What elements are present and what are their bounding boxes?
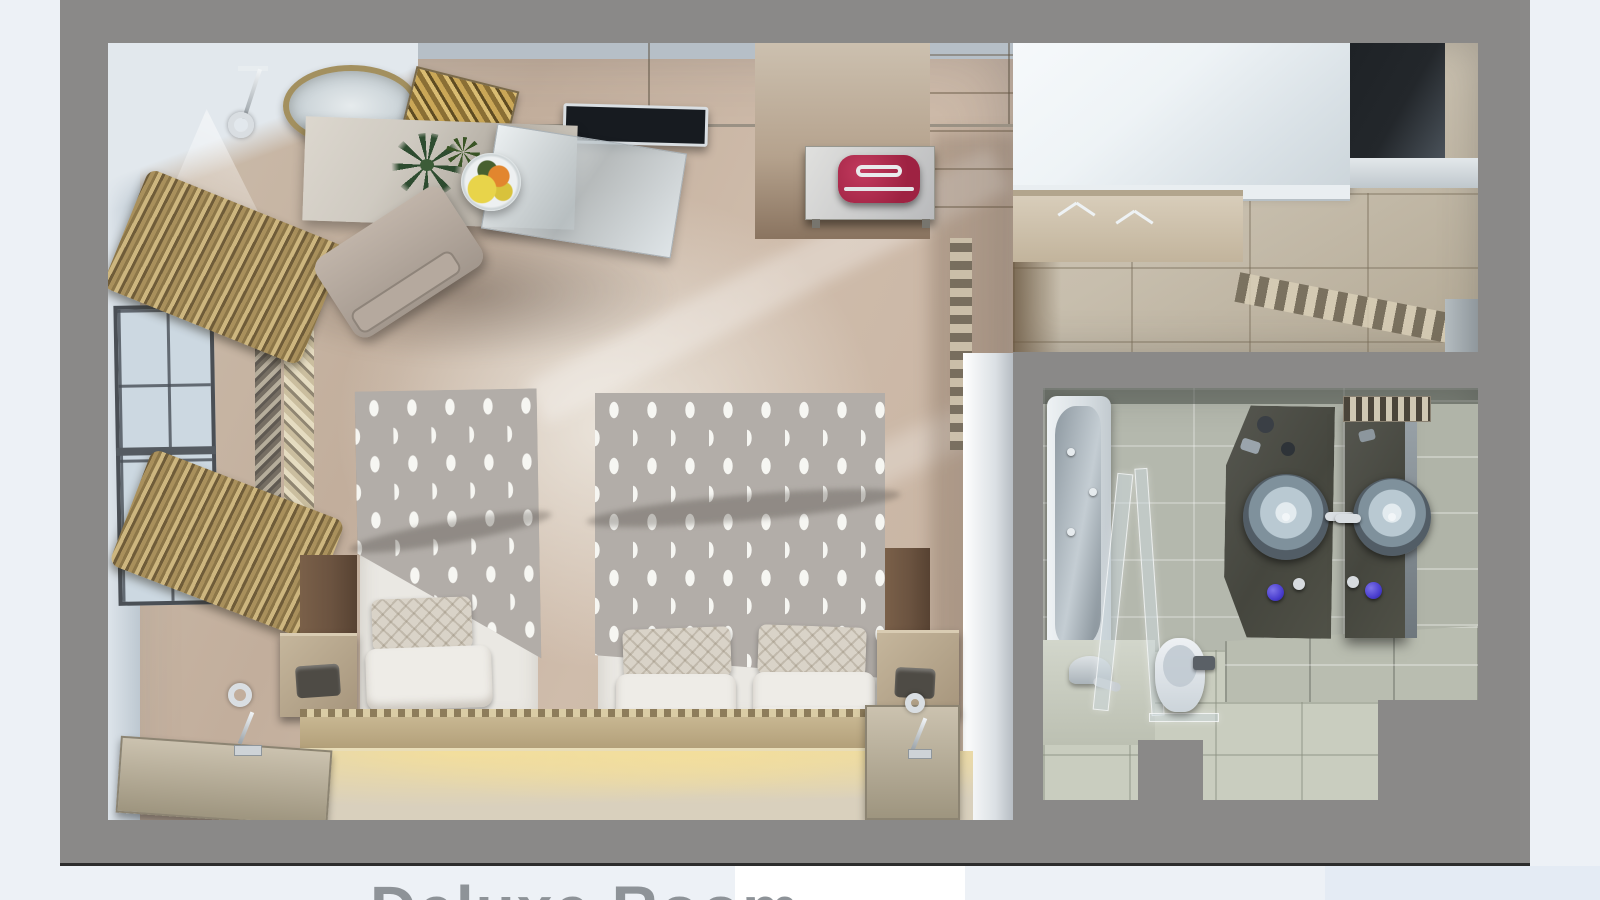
ledge-left	[116, 736, 333, 820]
platform-mosaic-trim	[300, 709, 960, 717]
sink-faucet-right	[1335, 514, 1361, 523]
toilet-lid	[1163, 645, 1197, 687]
chrome-knob	[1347, 576, 1359, 588]
tub-jet	[1067, 528, 1075, 536]
toiletry-item	[1281, 442, 1295, 456]
lamp-stem	[238, 711, 254, 744]
entry-silver-panel	[1445, 299, 1478, 352]
double-bed-quilted-pillow	[757, 624, 867, 678]
blue-knob	[1365, 582, 1382, 599]
single-bed-pillow	[365, 645, 493, 711]
wardrobe-cabinet	[1013, 43, 1350, 190]
tub-jet	[1089, 488, 1097, 496]
arc-floor-lamp	[220, 68, 290, 153]
bench-leg	[922, 219, 930, 228]
sink-drain	[1388, 513, 1396, 521]
bottom-blue-box	[1325, 866, 1600, 900]
bathtub-basin	[1055, 406, 1101, 646]
lamp-stem	[911, 717, 927, 750]
bench-leg	[812, 219, 820, 228]
headboard-wood-panel	[885, 548, 930, 642]
closet-side-panel	[930, 43, 1013, 244]
deluxe-room-slide: Deluxe Room	[0, 0, 1600, 900]
bathroom-render	[1043, 388, 1478, 800]
headboard-wood-panel	[300, 555, 357, 645]
table-lamp-left	[228, 683, 268, 803]
toiletry-item	[1257, 416, 1274, 433]
bedroom-render	[108, 43, 1013, 820]
shower-glass-panel	[1149, 713, 1219, 722]
clothes-hanger	[1119, 211, 1149, 231]
lamp-shade	[228, 683, 252, 707]
blue-knob	[1267, 584, 1284, 601]
entrance-door-niche	[1350, 43, 1445, 158]
lamp-shade	[905, 693, 925, 713]
lamp-arm	[238, 66, 268, 71]
lamp-base	[908, 749, 932, 759]
caption-title: Deluxe Room	[370, 872, 801, 900]
single-bed-quilted-pillow	[371, 596, 473, 651]
lamp-shade	[228, 112, 254, 138]
underglow-floor	[238, 751, 973, 820]
tub-jet	[1067, 448, 1075, 456]
entrance-ledge	[1350, 158, 1478, 188]
plant-center	[420, 159, 434, 171]
chrome-knob	[1293, 578, 1305, 590]
wall-notch	[1378, 700, 1478, 800]
red-duffel-bag	[838, 155, 920, 203]
sink-drain	[1282, 513, 1290, 521]
patterned-towel	[1343, 396, 1431, 422]
table-lamp-right	[903, 693, 939, 803]
fruit-bowl	[461, 153, 521, 211]
lamp-base	[234, 745, 262, 756]
telephone	[295, 664, 341, 699]
double-bed-quilted-pillow	[622, 626, 732, 680]
bag-trim	[844, 187, 914, 191]
clothes-hanger	[1061, 203, 1091, 223]
partition-wall	[963, 353, 1013, 820]
bed-platform	[300, 715, 960, 751]
bag-handle	[856, 165, 902, 177]
floor-drain	[1193, 656, 1215, 670]
entry-render	[1013, 43, 1478, 352]
wall-step	[1138, 740, 1203, 800]
